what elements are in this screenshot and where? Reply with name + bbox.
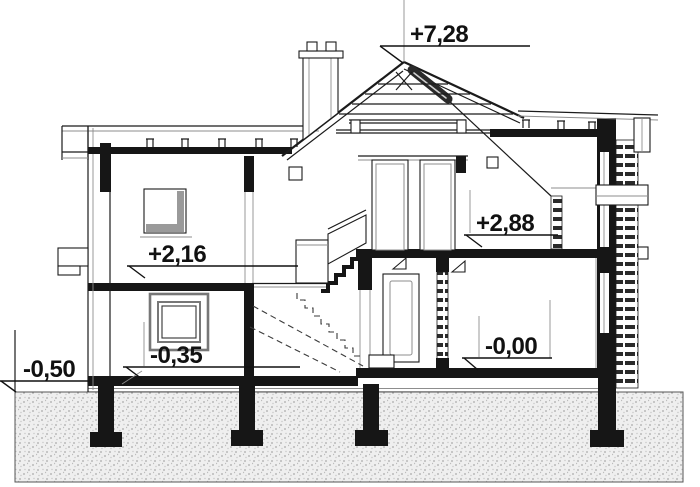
level-marker-lower-right: -0,00 bbox=[462, 316, 552, 370]
upper-interior bbox=[140, 156, 498, 250]
level-marker-upper-left: +2,16 bbox=[127, 241, 298, 278]
slab-lower-left bbox=[88, 376, 358, 386]
foundation-footing bbox=[231, 430, 263, 446]
level-label-ridge: +7,28 bbox=[410, 21, 468, 48]
level-label-upper-left: +2,16 bbox=[148, 241, 206, 268]
brick-hatch bbox=[616, 140, 638, 388]
joist-marks bbox=[146, 139, 298, 147]
roof bbox=[62, 62, 658, 196]
upper-door bbox=[372, 160, 408, 250]
wall-vent bbox=[289, 167, 302, 180]
lower-door bbox=[383, 274, 419, 362]
foundation-pier bbox=[239, 386, 255, 431]
section-drawing: +7,28 +2,88 +2,16 -0,35 -0,00 bbox=[0, 0, 700, 487]
right-wall-window bbox=[600, 205, 609, 247]
center-wall bbox=[358, 250, 372, 368]
door-head-mark bbox=[452, 261, 465, 272]
hidden-stair-dashed bbox=[297, 293, 360, 356]
foundation-footing bbox=[90, 432, 122, 447]
right-wall-window bbox=[600, 273, 609, 333]
lower-partition-wall bbox=[436, 258, 449, 370]
house-cross-section: +7,28 +2,88 +2,16 -0,35 -0,00 bbox=[0, 0, 700, 487]
wall-vent bbox=[487, 157, 498, 168]
upper-knee-wall bbox=[551, 188, 597, 249]
floor-step-box bbox=[369, 355, 394, 368]
site-ground bbox=[15, 330, 683, 482]
slab-upper-left bbox=[88, 283, 252, 291]
foundation-pier bbox=[598, 378, 616, 431]
railing-low-wall bbox=[296, 240, 328, 283]
level-label-lower-right: -0,00 bbox=[485, 333, 537, 360]
right-wall-window bbox=[600, 152, 609, 185]
upper-door bbox=[420, 160, 455, 250]
foundation-footing bbox=[590, 430, 624, 447]
interior-wall-left bbox=[244, 156, 254, 378]
stairs bbox=[250, 210, 368, 372]
upper-left-window bbox=[140, 189, 192, 237]
slab-lower-right bbox=[356, 368, 616, 378]
left-exterior-wall bbox=[58, 126, 111, 392]
level-markers: +7,28 +2,88 +2,16 -0,35 -0,00 bbox=[0, 0, 558, 392]
level-marker-upper-right: +2,88 bbox=[464, 190, 558, 247]
foundation-footing bbox=[355, 430, 388, 446]
level-label-grade: -0,50 bbox=[23, 356, 75, 383]
sill-band bbox=[596, 185, 648, 205]
left-wall-sill-box bbox=[58, 248, 88, 266]
foundation-pier bbox=[98, 386, 114, 432]
chimney-cap bbox=[299, 51, 343, 58]
door-head-mark bbox=[393, 258, 406, 269]
level-marker-ridge: +7,28 bbox=[380, 0, 530, 63]
foundation-pier bbox=[363, 384, 379, 431]
level-marker-grade: -0,50 bbox=[0, 356, 90, 392]
chimney bbox=[299, 42, 343, 140]
level-label-upper-right: +2,88 bbox=[476, 210, 534, 237]
level-label-lower-left: -0,35 bbox=[150, 342, 202, 369]
